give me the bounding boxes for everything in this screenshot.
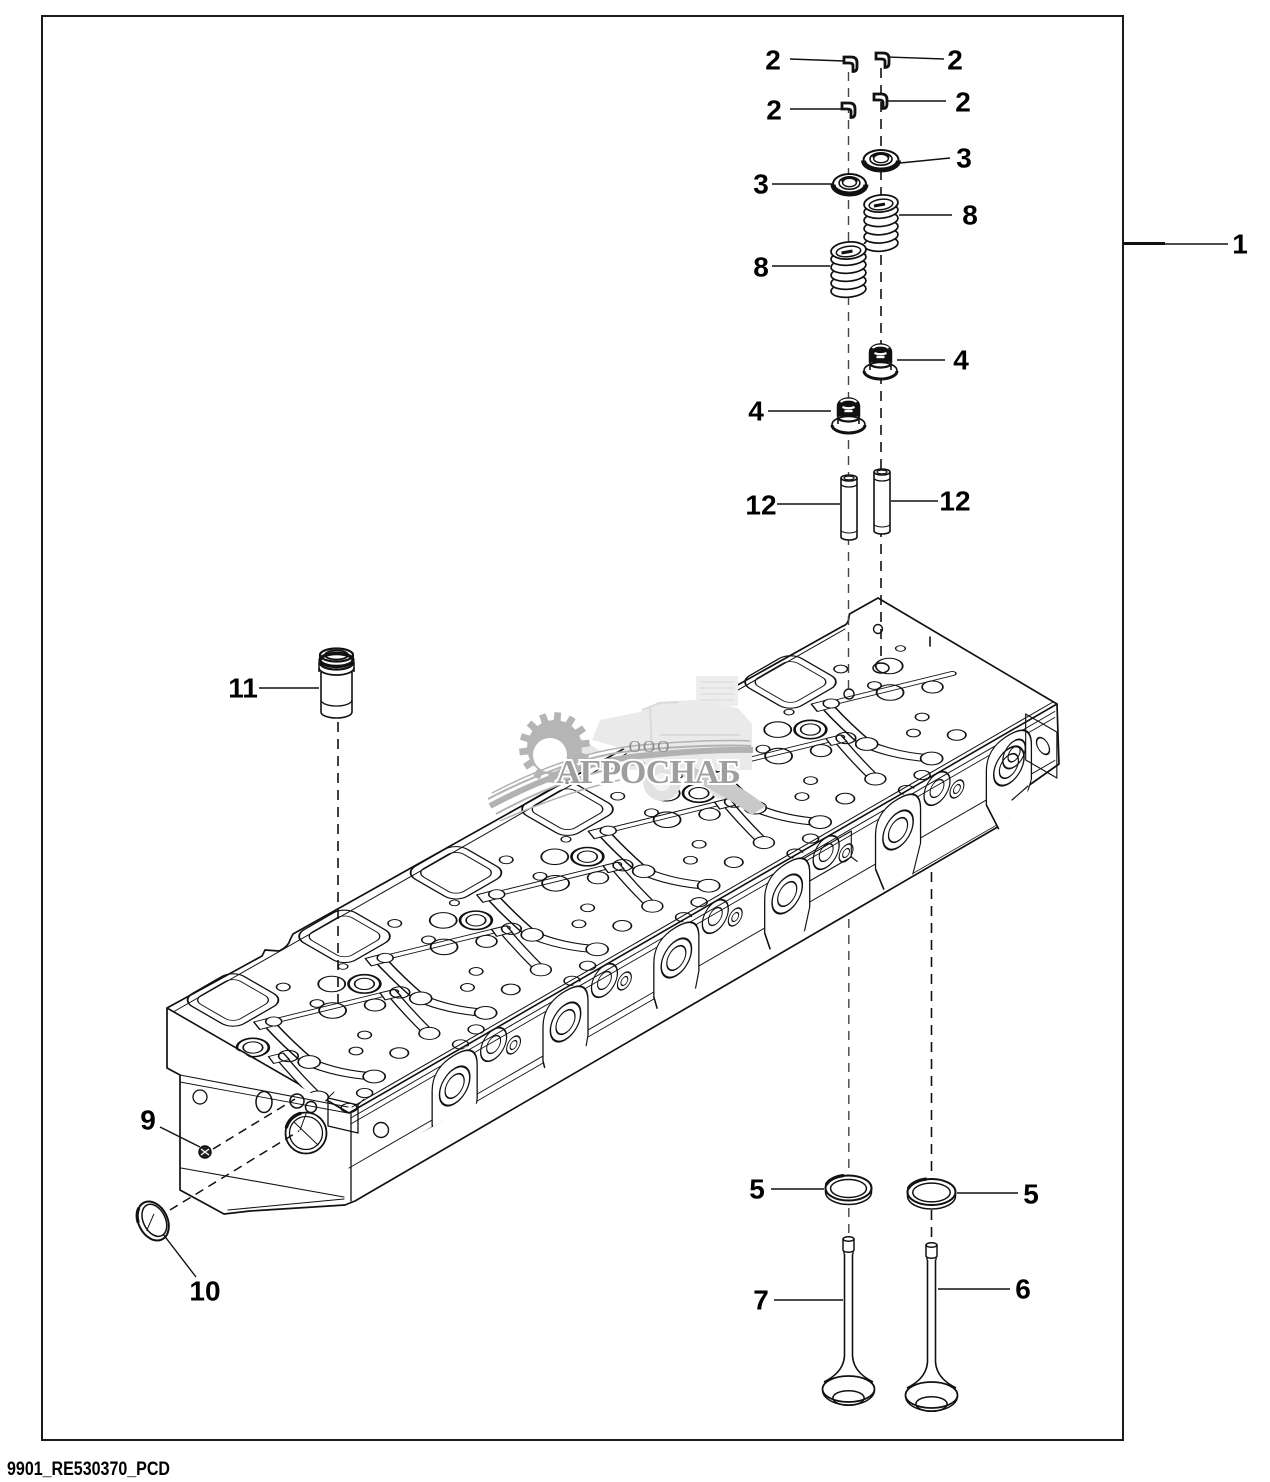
svg-text:11: 11 bbox=[228, 673, 258, 704]
svg-text:9901_RE530370_PCD: 9901_RE530370_PCD bbox=[7, 1459, 170, 1480]
svg-text:8: 8 bbox=[753, 252, 769, 283]
svg-text:6: 6 bbox=[1015, 1274, 1031, 1305]
svg-text:9: 9 bbox=[140, 1105, 156, 1136]
svg-text:12: 12 bbox=[745, 490, 776, 521]
svg-text:3: 3 bbox=[956, 143, 972, 174]
svg-text:3: 3 bbox=[753, 169, 769, 200]
svg-text:АГРОСНАБ: АГРОСНАБ bbox=[556, 754, 740, 791]
svg-text:12: 12 bbox=[939, 486, 970, 517]
svg-text:5: 5 bbox=[749, 1174, 765, 1205]
svg-text:2: 2 bbox=[955, 87, 971, 118]
svg-text:2: 2 bbox=[766, 95, 782, 126]
svg-text:2: 2 bbox=[947, 45, 963, 76]
svg-text:5: 5 bbox=[1023, 1179, 1039, 1210]
svg-text:4: 4 bbox=[748, 396, 764, 427]
svg-text:2: 2 bbox=[765, 45, 781, 76]
svg-text:4: 4 bbox=[953, 345, 969, 376]
svg-text:7: 7 bbox=[753, 1285, 769, 1316]
svg-text:10: 10 bbox=[189, 1276, 220, 1307]
svg-text:1: 1 bbox=[1232, 229, 1248, 260]
svg-text:8: 8 bbox=[962, 200, 978, 231]
